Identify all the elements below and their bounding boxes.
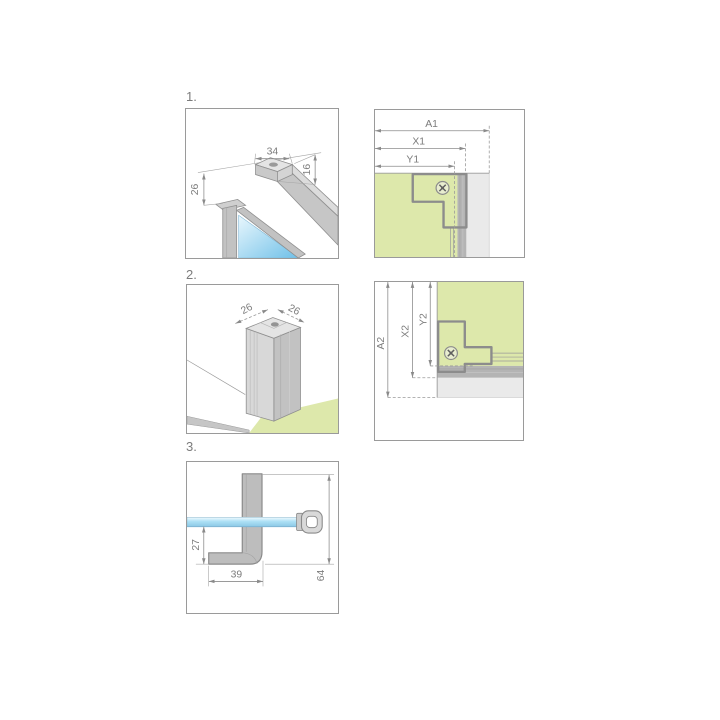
panel-floor-fixing-section: A2 X2 Y2	[374, 281, 524, 441]
phillips-screw-icon	[436, 182, 449, 195]
panel-wall-fixing-plan: A1 X1 Y1	[374, 109, 525, 258]
dim-foot-length: 39	[231, 569, 243, 580]
dim-a1: A1	[425, 119, 438, 130]
dim-x2: X2	[401, 325, 412, 338]
dim-y1: Y1	[406, 154, 419, 165]
dim-offset: 26	[190, 183, 201, 195]
support-bar-drawing	[198, 153, 338, 258]
wall-area	[466, 173, 489, 257]
wall-line	[187, 360, 245, 395]
panel-step3-bottom-bracket: 27 39 64	[186, 461, 339, 614]
step-2-label: 2.	[186, 268, 197, 281]
dim-bar-height: 16	[302, 164, 313, 176]
floor-profile	[187, 416, 249, 433]
panel-step1-support-bar: 34 16 26	[185, 108, 339, 259]
dim-left: 26	[239, 302, 255, 317]
step-3-label: 3.	[186, 440, 197, 453]
glass-panel-edge	[187, 517, 298, 526]
wall-profile	[223, 205, 237, 258]
screw-hole-icon	[271, 322, 279, 326]
wall-profile-strip	[457, 173, 466, 257]
dim-right: 26	[286, 303, 302, 318]
phillips-screw-icon	[445, 347, 458, 360]
dim-bracket-height: 64	[316, 570, 327, 582]
dim-a2: A2	[376, 337, 387, 350]
dim-y2: Y2	[418, 313, 429, 326]
dim-bar-width: 34	[267, 147, 279, 158]
step-1-label: 1.	[186, 90, 197, 103]
dim-x1: X1	[412, 137, 425, 148]
post-right-face	[274, 327, 301, 421]
dim-glass-to-foot: 27	[191, 539, 202, 551]
panel-step2-corner-post: 26 26	[186, 284, 339, 434]
glass-clamp	[297, 511, 323, 533]
corner-post	[246, 318, 300, 422]
floor-area	[437, 378, 523, 398]
screw-slot-icon	[269, 162, 278, 166]
installation-diagram: 1. 2. 3.	[0, 0, 720, 720]
